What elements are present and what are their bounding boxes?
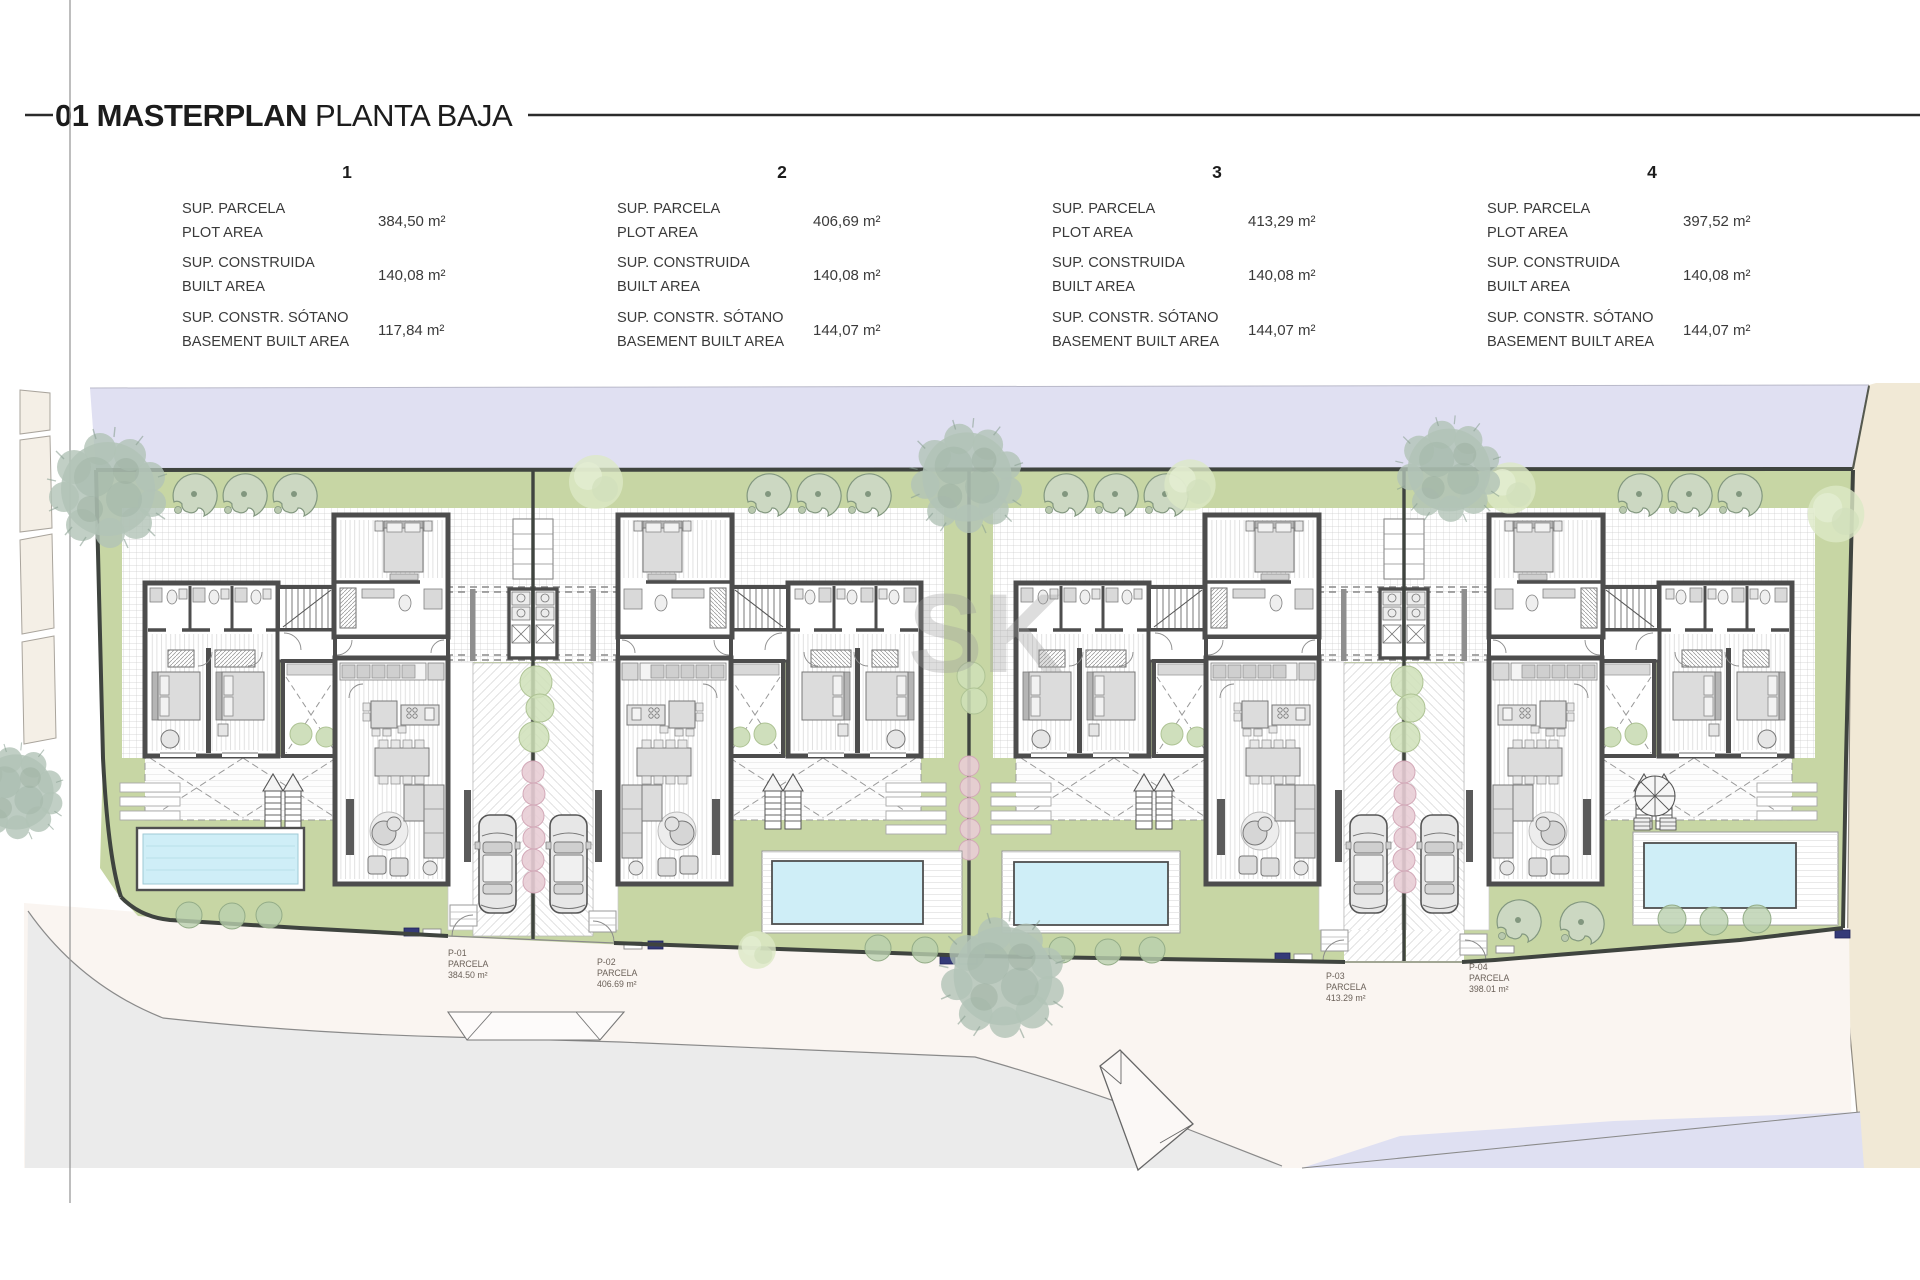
svg-text:BUILT AREA: BUILT AREA <box>1487 279 1570 295</box>
svg-text:398.01 m²: 398.01 m² <box>1469 984 1509 994</box>
svg-text:01 MASTERPLAN PLANTA BAJA: 01 MASTERPLAN PLANTA BAJA <box>55 98 513 133</box>
svg-text:SUP. CONSTRUIDA: SUP. CONSTRUIDA <box>1052 255 1185 271</box>
svg-text:SUP. PARCELA: SUP. PARCELA <box>617 201 721 217</box>
svg-text:SK: SK <box>908 571 1064 696</box>
svg-text:P-04: P-04 <box>1469 962 1488 972</box>
svg-text:P-03: P-03 <box>1326 971 1345 981</box>
svg-text:3: 3 <box>1212 162 1222 182</box>
svg-text:BASEMENT BUILT AREA: BASEMENT BUILT AREA <box>1052 334 1219 350</box>
svg-text:PARCELA: PARCELA <box>1326 982 1367 992</box>
svg-text:117,84 m²: 117,84 m² <box>378 322 444 339</box>
svg-text:4: 4 <box>1647 162 1657 182</box>
svg-text:144,07 m²: 144,07 m² <box>1683 322 1751 339</box>
svg-text:SUP. CONSTR. SÓTANO: SUP. CONSTR. SÓTANO <box>617 309 784 326</box>
svg-text:1: 1 <box>342 162 352 182</box>
svg-text:PLOT AREA: PLOT AREA <box>617 225 698 241</box>
svg-text:BASEMENT BUILT AREA: BASEMENT BUILT AREA <box>182 334 349 350</box>
svg-text:413.29 m²: 413.29 m² <box>1326 993 1366 1003</box>
svg-text:384,50 m²: 384,50 m² <box>378 213 446 230</box>
svg-text:SUP. CONSTRUIDA: SUP. CONSTRUIDA <box>617 255 750 271</box>
svg-text:144,07 m²: 144,07 m² <box>1248 322 1316 339</box>
svg-text:140,08 m²: 140,08 m² <box>813 267 881 284</box>
svg-text:SUP. CONSTRUIDA: SUP. CONSTRUIDA <box>182 255 315 271</box>
svg-text:SUP. CONSTR. SÓTANO: SUP. CONSTR. SÓTANO <box>1052 309 1219 326</box>
svg-text:413,29 m²: 413,29 m² <box>1248 213 1316 230</box>
svg-text:BUILT AREA: BUILT AREA <box>182 279 265 295</box>
svg-text:PARCELA: PARCELA <box>1469 973 1510 983</box>
svg-text:PLOT AREA: PLOT AREA <box>1052 225 1133 241</box>
svg-text:BUILT AREA: BUILT AREA <box>1052 279 1135 295</box>
svg-text:397,52 m²: 397,52 m² <box>1683 213 1751 230</box>
svg-text:BUILT AREA: BUILT AREA <box>617 279 700 295</box>
svg-text:SUP. PARCELA: SUP. PARCELA <box>1052 201 1156 217</box>
svg-text:BASEMENT BUILT AREA: BASEMENT BUILT AREA <box>617 334 784 350</box>
svg-text:PLOT AREA: PLOT AREA <box>1487 225 1568 241</box>
svg-text:P-01: P-01 <box>448 948 467 958</box>
svg-text:BASEMENT BUILT AREA: BASEMENT BUILT AREA <box>1487 334 1654 350</box>
svg-text:406,69 m²: 406,69 m² <box>813 213 881 230</box>
svg-text:SUP. CONSTR. SÓTANO: SUP. CONSTR. SÓTANO <box>1487 309 1654 326</box>
svg-text:PARCELA: PARCELA <box>597 968 638 978</box>
svg-text:P-02: P-02 <box>597 957 616 967</box>
svg-text:SUP. CONSTRUIDA: SUP. CONSTRUIDA <box>1487 255 1620 271</box>
svg-text:140,08 m²: 140,08 m² <box>1248 267 1316 284</box>
svg-text:2: 2 <box>777 162 787 182</box>
svg-text:SUP. CONSTR. SÓTANO: SUP. CONSTR. SÓTANO <box>182 309 349 326</box>
svg-text:140,08 m²: 140,08 m² <box>1683 267 1751 284</box>
svg-text:144,07 m²: 144,07 m² <box>813 322 881 339</box>
svg-text:PLOT AREA: PLOT AREA <box>182 225 263 241</box>
svg-text:406.69 m²: 406.69 m² <box>597 979 637 989</box>
svg-text:SUP. PARCELA: SUP. PARCELA <box>182 201 286 217</box>
svg-text:384.50 m²: 384.50 m² <box>448 970 488 980</box>
svg-text:140,08 m²: 140,08 m² <box>378 267 446 284</box>
svg-text:PARCELA: PARCELA <box>448 959 489 969</box>
svg-text:SUP. PARCELA: SUP. PARCELA <box>1487 201 1591 217</box>
